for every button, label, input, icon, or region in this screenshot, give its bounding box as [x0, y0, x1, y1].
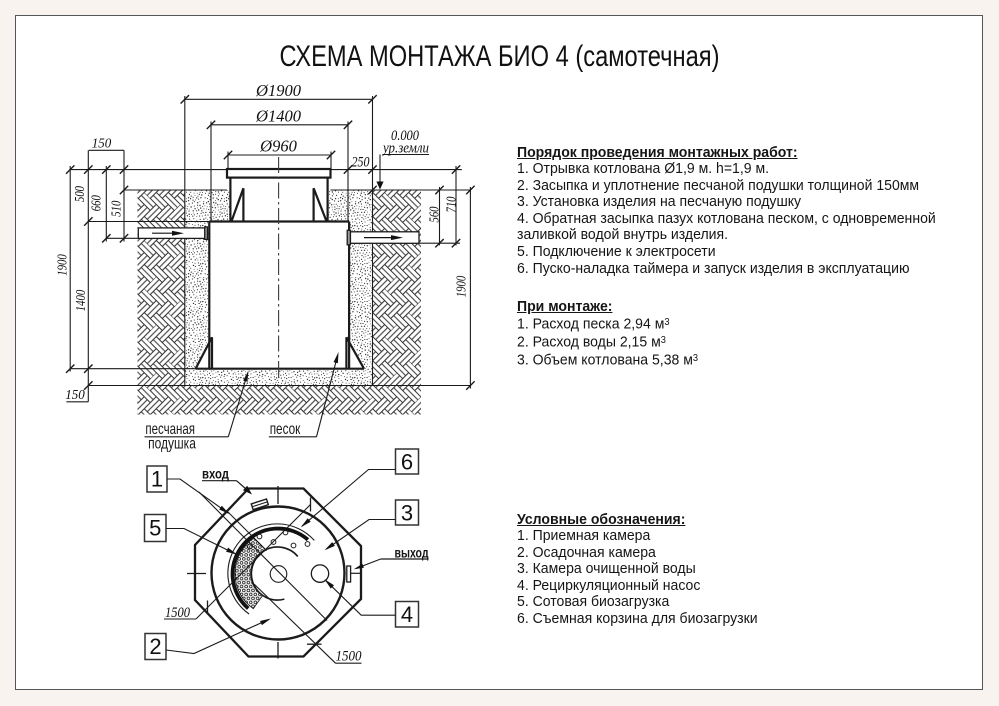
- svg-text:560: 560: [427, 206, 442, 222]
- svg-text:500: 500: [72, 186, 87, 202]
- svg-text:710: 710: [444, 196, 459, 212]
- svg-text:3: 3: [401, 501, 413, 526]
- svg-text:6: 6: [401, 450, 413, 475]
- svg-text:4: 4: [401, 602, 413, 627]
- svg-text:660: 660: [89, 195, 104, 211]
- svg-text:1500: 1500: [336, 648, 363, 664]
- svg-text:выход: выход: [395, 546, 429, 561]
- svg-text:510: 510: [109, 201, 124, 217]
- svg-text:1400: 1400: [73, 290, 88, 312]
- svg-text:1500: 1500: [165, 605, 191, 621]
- svg-text:вход: вход: [202, 467, 229, 482]
- svg-text:песок: песок: [270, 421, 301, 438]
- svg-text:2: 2: [149, 634, 161, 659]
- svg-text:150: 150: [65, 387, 85, 402]
- svg-text:подушка: подушка: [148, 435, 196, 452]
- svg-text:Ø960: Ø960: [259, 137, 297, 156]
- svg-text:1900: 1900: [55, 254, 70, 276]
- svg-text:1: 1: [151, 467, 163, 492]
- svg-text:Ø1400: Ø1400: [255, 107, 302, 126]
- svg-text:ур.земли: ур.земли: [381, 141, 429, 157]
- svg-text:1900: 1900: [454, 276, 469, 298]
- svg-text:5: 5: [149, 516, 161, 541]
- svg-text:150: 150: [92, 136, 112, 151]
- svg-text:250: 250: [352, 155, 371, 171]
- svg-text:Ø1900: Ø1900: [255, 81, 302, 100]
